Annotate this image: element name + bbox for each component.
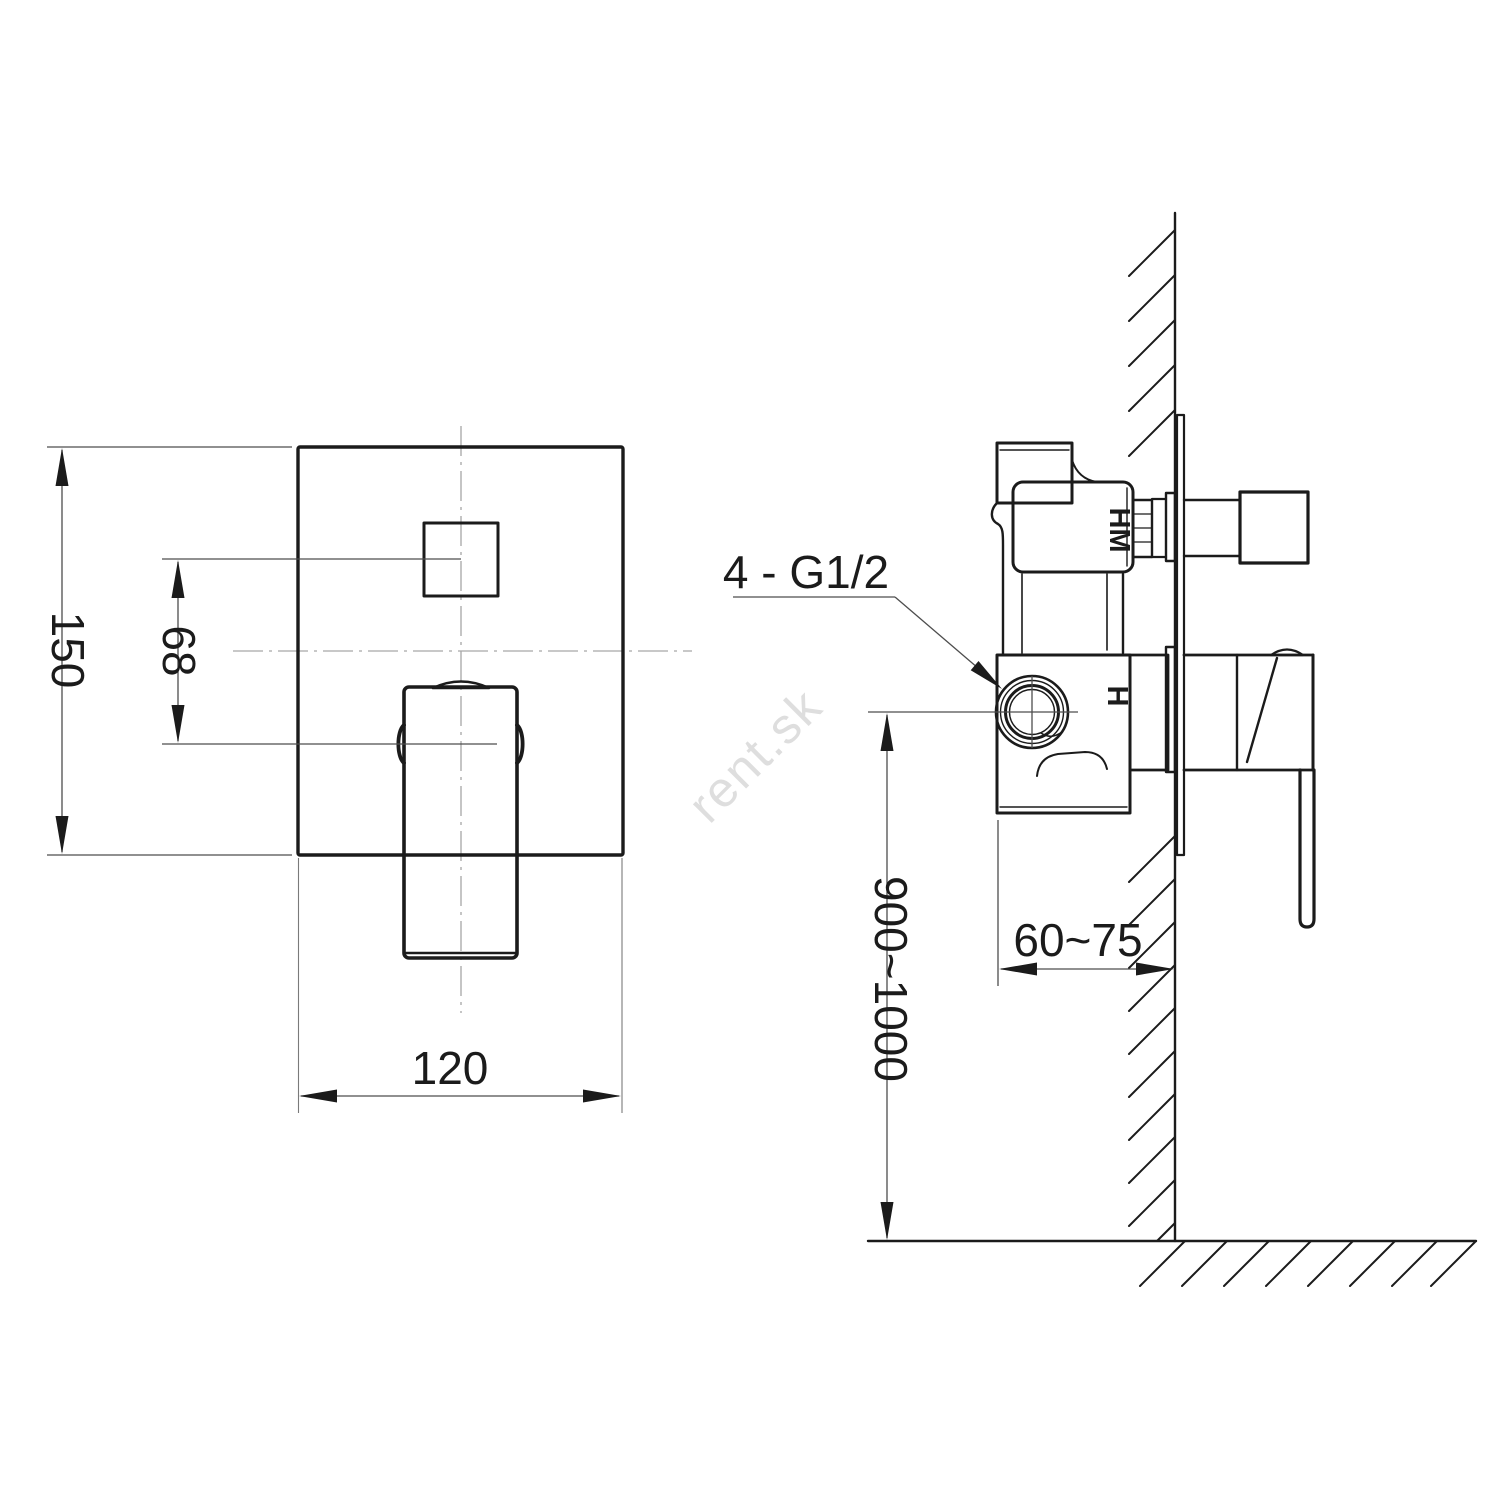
handle-cone-edge: [1247, 658, 1277, 762]
dimension-mounting-height: 900~1000: [865, 712, 1078, 1240]
arrow-left-icon: [299, 1090, 337, 1103]
front-view: 150 68 120: [42, 426, 692, 1113]
dim-label-150: 150: [42, 612, 94, 689]
wall-hatch-top: [1129, 230, 1175, 456]
lever-pivot-dome: [433, 682, 489, 689]
dim-label-mounting-height: 900~1000: [865, 876, 917, 1082]
side-view: HM: [723, 213, 1476, 1286]
dim-label-depth: 60~75: [1013, 914, 1142, 966]
handle-dome: [1271, 650, 1303, 656]
arrow-right-icon: [583, 1090, 621, 1103]
arrow-up-icon: [56, 448, 69, 486]
watermark: rent.sk: [677, 677, 833, 833]
marking-hm: HM: [1103, 507, 1135, 552]
arrow-up-icon: [172, 560, 185, 598]
dimension-offset-68: 68: [153, 560, 205, 743]
floor-hatch: [1140, 1241, 1476, 1286]
dim-label-120: 120: [412, 1042, 489, 1094]
arrow-down-icon: [56, 816, 69, 854]
arrow-down-icon: [881, 1202, 894, 1240]
outlet-detail: [1037, 752, 1107, 776]
dim-label-68: 68: [153, 625, 205, 676]
upper-flange: [1166, 493, 1175, 561]
body-left-profile: [992, 503, 1003, 655]
port-fillet: [1072, 460, 1097, 482]
top-port: [997, 443, 1072, 503]
wall-hatch-bottom: [1129, 836, 1175, 1241]
dimension-depth: 60~75: [998, 820, 1174, 986]
dimension-width-120: 120: [299, 858, 623, 1113]
lower-cartridge: [1130, 655, 1168, 770]
technical-drawing-page: rent.sk 150: [0, 0, 1500, 1500]
marking-h: H: [1101, 686, 1133, 707]
connection-label: 4 - G1/2: [723, 546, 889, 598]
valve-body: HM: [992, 443, 1175, 813]
plate-edge: [1177, 415, 1184, 855]
arrow-down-icon: [172, 705, 185, 743]
connection-callout: 4 - G1/2: [723, 546, 1002, 689]
lever-arm: [1300, 770, 1314, 927]
knob: [1240, 492, 1308, 563]
mixer-installation-drawing: rent.sk 150: [0, 0, 1500, 1500]
arrow-up-icon: [881, 713, 894, 751]
lever-handle-side: [1184, 650, 1314, 928]
diverter-knob-side: [1184, 492, 1308, 563]
middle-column: [1022, 574, 1123, 653]
upper-connector: [1133, 493, 1175, 561]
floor: [868, 1241, 1476, 1286]
